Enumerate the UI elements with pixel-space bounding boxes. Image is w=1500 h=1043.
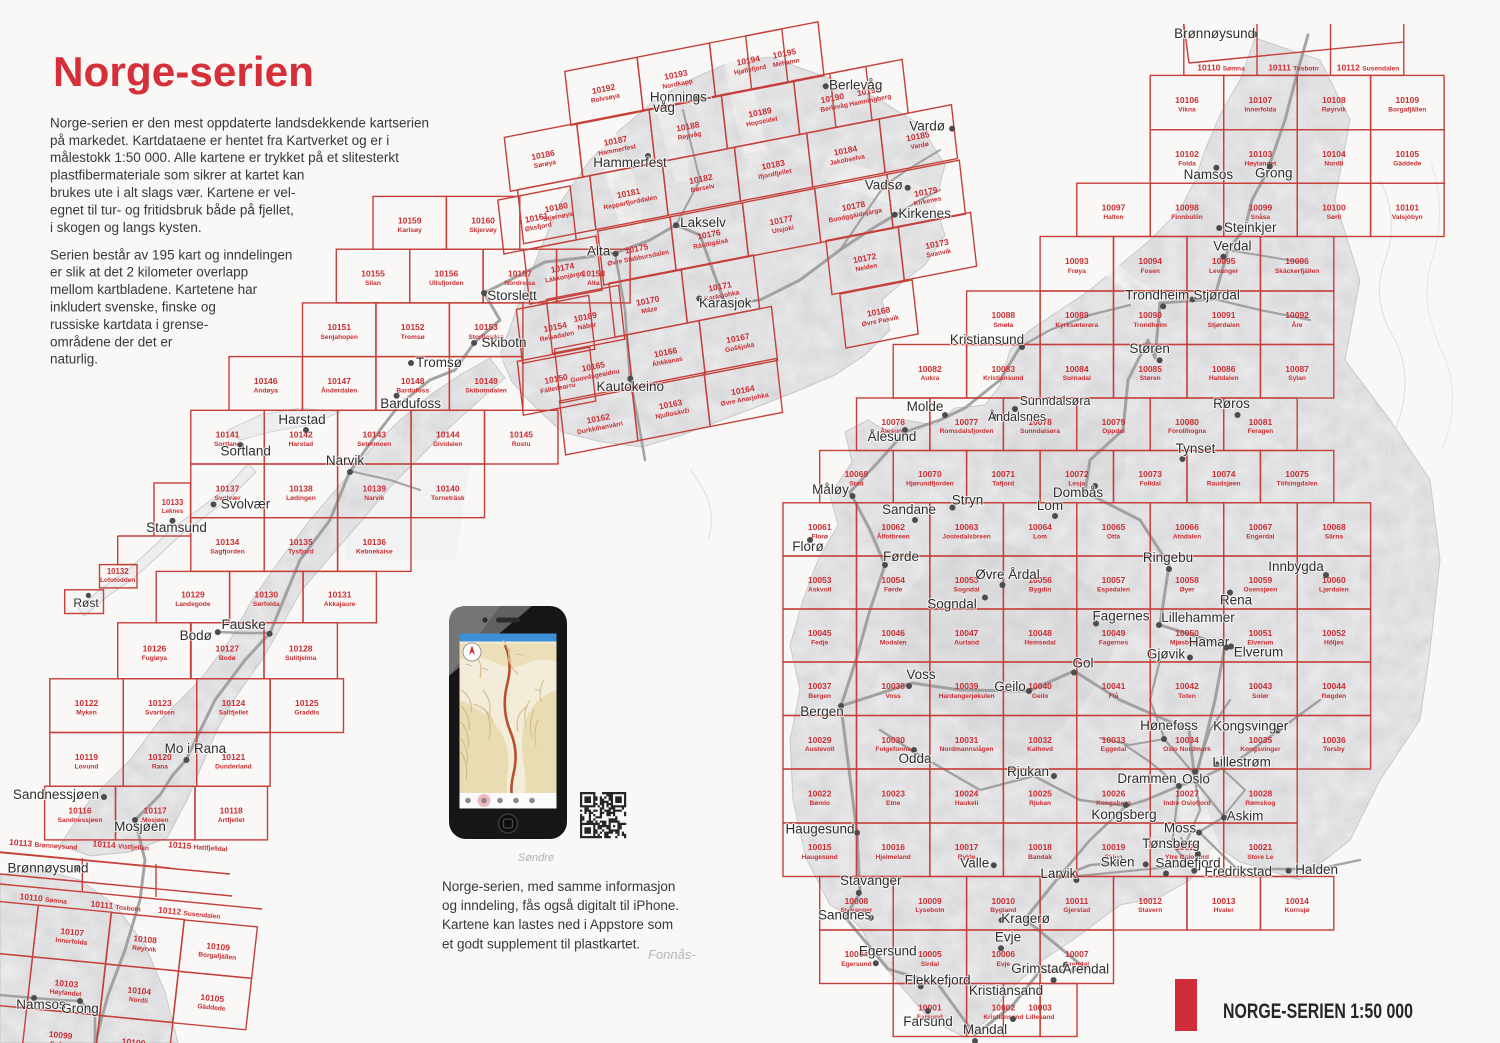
svg-text:Fagernes: Fagernes	[1099, 640, 1129, 647]
svg-text:Bygdin: Bygdin	[1029, 587, 1051, 594]
svg-text:Store Le: Store Le	[1247, 854, 1274, 861]
svg-text:10003: 10003	[1028, 1003, 1052, 1013]
svg-text:plastfibermateriale som sikrer: plastfibermateriale som sikrer at kartet…	[50, 168, 304, 183]
svg-text:Oslo Nordmark: Oslo Nordmark	[1163, 746, 1211, 753]
svg-text:Lakselv: Lakselv	[680, 215, 726, 230]
svg-text:Ringebu: Ringebu	[1143, 550, 1193, 565]
svg-text:områdene der det er: områdene der det er	[50, 334, 173, 349]
svg-text:Moss: Moss	[1164, 821, 1197, 836]
svg-text:10057: 10057	[1102, 575, 1126, 585]
svg-text:Narvik: Narvik	[364, 495, 384, 502]
svg-text:Finnbuliin: Finnbuliin	[1171, 214, 1203, 221]
svg-text:Kirkenes: Kirkenes	[898, 206, 951, 221]
svg-text:Gäddede: Gäddede	[1393, 161, 1422, 168]
svg-text:Brønnøysund: Brønnøysund	[1174, 26, 1255, 41]
svg-text:Egersund: Egersund	[841, 961, 871, 968]
svg-text:Mo i Rana: Mo i Rana	[165, 741, 227, 756]
svg-text:Nordli: Nordli	[1324, 161, 1343, 168]
svg-text:10035: 10035	[1249, 735, 1273, 745]
svg-text:Lillesand: Lillesand	[1026, 1014, 1055, 1021]
svg-text:Lysebotn: Lysebotn	[915, 907, 944, 914]
svg-text:Kongsberg: Kongsberg	[1091, 807, 1156, 822]
svg-text:Sortland: Sortland	[221, 443, 271, 458]
svg-text:inkludert svenske, finske og: inkludert svenske, finske og	[50, 300, 216, 315]
svg-text:Bardufoss: Bardufoss	[396, 388, 429, 395]
svg-text:Solør: Solør	[1252, 693, 1269, 700]
svg-text:Røgden: Røgden	[1322, 693, 1347, 700]
svg-text:10081: 10081	[1249, 417, 1273, 427]
svg-text:10011: 10011	[1065, 896, 1088, 906]
svg-text:Brønnøysund: Brønnøysund	[7, 861, 88, 876]
svg-text:Kautokeino: Kautokeino	[597, 379, 665, 394]
svg-text:10062: 10062	[881, 522, 905, 532]
svg-text:10051: 10051	[1249, 628, 1273, 638]
svg-text:10037: 10037	[808, 681, 832, 691]
svg-text:10100: 10100	[121, 1036, 146, 1043]
svg-text:Tysfjord: Tysfjord	[288, 549, 314, 556]
svg-text:10146: 10146	[254, 376, 278, 386]
svg-text:russiske kartdata i grense-: russiske kartdata i grense-	[50, 317, 208, 332]
svg-text:våg: våg	[653, 100, 675, 115]
svg-text:Haukeli: Haukeli	[955, 800, 979, 807]
svg-text:Trondheim: Trondheim	[1133, 322, 1167, 329]
svg-text:Narvik: Narvik	[326, 453, 365, 468]
svg-text:Evje: Evje	[995, 929, 1021, 944]
svg-text:Støren: Støren	[1140, 375, 1161, 382]
svg-text:10072: 10072	[1065, 469, 1089, 479]
svg-text:Borgafjällen: Borgafjällen	[1388, 107, 1426, 114]
svg-text:Myken: Myken	[76, 710, 97, 717]
svg-text:10147: 10147	[327, 376, 351, 386]
svg-text:10128: 10128	[289, 643, 313, 653]
svg-text:Andøya: Andøya	[254, 388, 279, 395]
svg-text:Etne: Etne	[886, 800, 901, 807]
svg-text:Sandnes: Sandnes	[818, 908, 872, 923]
svg-text:10145: 10145	[509, 430, 533, 440]
svg-text:Åndalsnes: Åndalsnes	[988, 409, 1046, 424]
svg-text:Stamsund: Stamsund	[146, 520, 207, 535]
svg-text:10092: 10092	[1285, 310, 1309, 320]
svg-text:Ålesund: Ålesund	[868, 429, 917, 444]
svg-text:Stryn: Stryn	[952, 493, 984, 508]
svg-text:Kebnekaise: Kebnekaise	[356, 549, 393, 556]
svg-text:10099: 10099	[1249, 202, 1273, 212]
svg-text:Serien består av 195 kart og i: Serien består av 195 kart og inndelingen	[50, 247, 292, 262]
svg-text:10157: 10157	[508, 269, 532, 279]
svg-text:10133: 10133	[162, 498, 184, 507]
svg-text:Haugesund: Haugesund	[785, 822, 854, 837]
svg-text:Innbygda: Innbygda	[1268, 559, 1324, 574]
svg-text:10044: 10044	[1322, 681, 1346, 691]
svg-text:Kristiansund: Kristiansund	[950, 332, 1024, 347]
svg-text:10025: 10025	[1028, 789, 1052, 799]
svg-text:Ånderdalen: Ånderdalen	[321, 386, 357, 395]
svg-text:Odda: Odda	[898, 751, 932, 766]
svg-text:Berlevåg: Berlevåg	[829, 77, 882, 92]
svg-text:10144: 10144	[436, 430, 460, 440]
svg-text:Fauske: Fauske	[221, 617, 265, 632]
svg-text:Sogndal: Sogndal	[927, 597, 977, 612]
svg-text:Bardufoss: Bardufoss	[380, 396, 441, 411]
svg-text:10098: 10098	[1175, 202, 1199, 212]
svg-text:10124: 10124	[222, 698, 246, 708]
svg-text:10106: 10106	[1175, 95, 1199, 105]
svg-text:10152: 10152	[401, 322, 425, 332]
svg-text:Verdal: Verdal	[1213, 239, 1251, 254]
svg-text:10141: 10141	[216, 430, 240, 440]
svg-text:Geilo: Geilo	[994, 679, 1026, 694]
svg-text:10038: 10038	[881, 681, 905, 691]
svg-text:10160: 10160	[471, 215, 495, 225]
svg-text:10027: 10027	[1175, 789, 1199, 799]
svg-text:Halten: Halten	[1103, 214, 1123, 221]
svg-text:10041: 10041	[1102, 681, 1126, 691]
svg-text:10034: 10034	[1175, 735, 1199, 745]
svg-text:Egersund: Egersund	[859, 943, 917, 958]
svg-text:Florø: Florø	[792, 539, 824, 554]
svg-text:Kongsvinger: Kongsvinger	[1240, 746, 1281, 753]
svg-text:Tafjord: Tafjord	[992, 481, 1014, 488]
svg-text:10083: 10083	[991, 364, 1015, 374]
svg-text:Gol: Gol	[1072, 656, 1093, 671]
svg-text:10103: 10103	[1249, 149, 1273, 159]
svg-text:10006: 10006	[991, 949, 1015, 959]
svg-text:10061: 10061	[808, 522, 832, 532]
svg-text:Sunndalsøra: Sunndalsøra	[1020, 394, 1091, 408]
svg-text:10079: 10079	[1102, 417, 1126, 427]
svg-text:Hvaler: Hvaler	[1214, 907, 1235, 914]
svg-text:Fosen: Fosen	[1140, 268, 1159, 275]
svg-text:Bømlo: Bømlo	[809, 800, 830, 807]
svg-text:10049: 10049	[1102, 628, 1126, 638]
svg-text:10023: 10023	[881, 789, 905, 799]
svg-text:Oslo: Oslo	[1182, 772, 1210, 787]
svg-text:i skogen og langs kysten.: i skogen og langs kysten.	[50, 220, 202, 235]
svg-text:10143: 10143	[362, 430, 386, 440]
svg-text:Stjørdal: Stjørdal	[1193, 287, 1240, 302]
svg-text:Namsos: Namsos	[1184, 167, 1234, 182]
svg-text:Forollhogna: Forollhogna	[1168, 428, 1206, 435]
svg-text:Førde: Førde	[883, 549, 919, 564]
svg-text:10153: 10153	[474, 322, 498, 332]
svg-text:Karlsøy: Karlsøy	[398, 227, 423, 234]
svg-text:10119: 10119	[75, 752, 98, 762]
svg-text:10058: 10058	[1175, 575, 1199, 585]
svg-text:10094: 10094	[1138, 256, 1162, 266]
svg-text:Harstad: Harstad	[278, 412, 325, 427]
svg-text:Svartisen: Svartisen	[145, 710, 175, 717]
svg-text:10097: 10097	[1102, 202, 1126, 212]
svg-text:10071: 10071	[991, 469, 1015, 479]
svg-text:10105: 10105	[1395, 149, 1419, 159]
svg-text:Rena: Rena	[1220, 593, 1253, 608]
svg-text:10107: 10107	[1249, 95, 1273, 105]
svg-text:Valsjöbyn: Valsjöbyn	[1392, 214, 1423, 221]
svg-text:Elverum: Elverum	[1234, 645, 1284, 660]
svg-text:10032: 10032	[1028, 735, 1052, 745]
svg-text:10047: 10047	[955, 628, 979, 638]
svg-text:10065: 10065	[1102, 522, 1126, 532]
svg-text:Molde: Molde	[907, 399, 944, 414]
svg-text:10148: 10148	[401, 376, 425, 386]
svg-text:Askim: Askim	[1227, 809, 1264, 824]
svg-text:Skibotndalen: Skibotndalen	[465, 388, 506, 395]
svg-text:10088: 10088	[991, 310, 1015, 320]
svg-text:10156: 10156	[435, 269, 459, 279]
svg-text:Rjukan: Rjukan	[1007, 764, 1049, 779]
svg-text:Bodø: Bodø	[180, 628, 212, 643]
svg-text:Eggedal: Eggedal	[1101, 746, 1127, 753]
svg-text:Lillestrøm: Lillestrøm	[1212, 755, 1271, 770]
svg-text:et godt supplement til plastka: et godt supplement til plastkartet.	[442, 936, 640, 951]
svg-text:er slik at det 2 kilometer ove: er slik at det 2 kilometer overlapp	[50, 265, 248, 280]
svg-text:Frøya: Frøya	[1068, 268, 1086, 275]
svg-text:10130: 10130	[254, 590, 278, 600]
svg-text:Innerfolda: Innerfolda	[1244, 107, 1276, 114]
svg-text:Mandal: Mandal	[963, 1022, 1007, 1037]
svg-text:Grimstad: Grimstad	[1011, 961, 1066, 976]
svg-text:Alta: Alta	[587, 280, 600, 287]
svg-text:10069: 10069	[845, 469, 869, 479]
svg-text:10031: 10031	[955, 735, 979, 745]
svg-text:10067: 10067	[1249, 522, 1273, 532]
svg-text:Valle: Valle	[960, 855, 989, 870]
svg-text:Øyer: Øyer	[1179, 587, 1194, 594]
svg-text:Kristiansand: Kristiansand	[969, 983, 1043, 998]
svg-text:Norge-serien: Norge-serien	[53, 48, 314, 95]
svg-text:10109: 10109	[1395, 95, 1419, 105]
svg-text:10089: 10089	[1065, 310, 1089, 320]
svg-text:10090: 10090	[1138, 310, 1162, 320]
svg-text:Sandane: Sandane	[882, 502, 936, 517]
svg-text:10074: 10074	[1212, 469, 1236, 479]
svg-text:10053: 10053	[808, 575, 832, 585]
svg-text:10018: 10018	[1028, 842, 1052, 852]
svg-text:10082: 10082	[918, 364, 942, 374]
svg-text:Farsund: Farsund	[903, 1014, 953, 1029]
svg-text:10021: 10021	[1249, 842, 1273, 852]
svg-text:Øvre Årdal: Øvre Årdal	[975, 567, 1040, 582]
svg-text:brukes ute i alt slags vær. Ka: brukes ute i alt slags vær. Kartene er v…	[50, 185, 295, 200]
svg-text:Torsby: Torsby	[1323, 746, 1345, 753]
svg-text:Stavern: Stavern	[1138, 907, 1162, 914]
svg-text:Måløy: Måløy	[812, 482, 849, 497]
svg-text:Raudsjøen: Raudsjøen	[1207, 481, 1241, 488]
svg-text:Setermoen: Setermoen	[357, 441, 391, 448]
svg-text:Røros: Røros	[1213, 396, 1250, 411]
svg-text:Rana: Rana	[152, 763, 168, 770]
svg-text:10080: 10080	[1175, 417, 1199, 427]
svg-text:10054: 10054	[881, 575, 905, 585]
svg-text:Sirdal: Sirdal	[921, 961, 939, 968]
svg-text:Haugesund: Haugesund	[802, 854, 838, 861]
svg-text:10073: 10073	[1138, 469, 1162, 479]
svg-text:10009: 10009	[918, 896, 942, 906]
svg-text:Flå: Flå	[1109, 692, 1119, 700]
svg-text:Dividalen: Dividalen	[433, 441, 462, 448]
svg-text:Storslett: Storslett	[487, 288, 537, 303]
svg-text:Skjervøy: Skjervøy	[469, 227, 497, 234]
svg-text:Skäckerfjällen: Skäckerfjällen	[1275, 268, 1319, 275]
svg-text:mellom kartbladene. Kartetene: mellom kartbladene. Kartetene har	[50, 282, 258, 297]
svg-text:10104: 10104	[1322, 149, 1346, 159]
svg-text:Akkajaure: Akkajaure	[324, 601, 356, 608]
svg-text:10138: 10138	[289, 483, 313, 493]
svg-text:10100: 10100	[1322, 202, 1346, 212]
svg-text:Rjukan: Rjukan	[1029, 800, 1051, 807]
svg-text:Rostu: Rostu	[512, 441, 531, 448]
svg-text:Tynset: Tynset	[1176, 441, 1216, 456]
svg-text:10017: 10017	[955, 842, 979, 852]
svg-text:Larvik: Larvik	[1040, 866, 1076, 881]
svg-text:10139: 10139	[362, 483, 386, 493]
svg-text:10091: 10091	[1212, 310, 1236, 320]
svg-text:10015: 10015	[808, 842, 832, 852]
svg-text:Feragen: Feragen	[1248, 428, 1274, 435]
svg-text:10075: 10075	[1285, 469, 1309, 479]
svg-text:Hardangerjøkulen: Hardangerjøkulen	[939, 693, 995, 700]
svg-text:Sagfjorden: Sagfjorden	[210, 549, 244, 556]
svg-text:10063: 10063	[955, 522, 979, 532]
svg-text:Sandnessjøen: Sandnessjøen	[58, 817, 103, 824]
svg-text:Espedalen: Espedalen	[1097, 587, 1130, 594]
svg-text:Atndalen: Atndalen	[1173, 533, 1201, 540]
svg-text:Kalhovd: Kalhovd	[1027, 746, 1053, 753]
svg-text:Sandnessjøen: Sandnessjøen	[13, 787, 99, 802]
svg-text:10048: 10048	[1028, 628, 1052, 638]
svg-text:Toten: Toten	[1178, 693, 1195, 700]
svg-text:10033: 10033	[1102, 735, 1126, 745]
svg-text:Evje: Evje	[997, 961, 1011, 968]
svg-text:10140: 10140	[436, 483, 460, 493]
svg-text:Grong: Grong	[1255, 165, 1293, 180]
svg-text:Kristiansund: Kristiansund	[983, 375, 1023, 382]
svg-text:10030: 10030	[881, 735, 905, 745]
svg-text:Karasjok: Karasjok	[699, 296, 752, 311]
svg-text:Otta: Otta	[1107, 533, 1121, 540]
svg-text:Hønefoss: Hønefoss	[1140, 718, 1198, 733]
svg-text:Svolvær: Svolvær	[221, 496, 271, 511]
svg-text:10059: 10059	[1249, 575, 1273, 585]
svg-text:målestokk 1:50 000. Alle karte: målestokk 1:50 000. Alle kartene er tryk…	[50, 150, 399, 165]
svg-text:Norge-serien er den mest oppda: Norge-serien er den mest oppdaterte land…	[50, 115, 429, 130]
svg-text:Sogndal: Sogndal	[954, 587, 980, 594]
svg-text:Sulitjelma: Sulitjelma	[285, 655, 316, 662]
svg-text:Skibotn: Skibotn	[481, 335, 526, 350]
svg-text:Töfsingdalen: Töfsingdalen	[1277, 481, 1318, 488]
svg-text:NORGE-SERIEN 1:50 000: NORGE-SERIEN 1:50 000	[1223, 1000, 1413, 1023]
svg-text:Alta: Alta	[587, 244, 611, 259]
svg-text:10084: 10084	[1065, 364, 1089, 374]
svg-text:10117: 10117	[144, 806, 167, 816]
svg-text:Fredrikstad: Fredrikstad	[1205, 864, 1273, 879]
svg-text:på markedet. Kartdataene er he: på markedet. Kartdataene er hentet fra K…	[50, 133, 389, 148]
svg-text:Ålfotbreen: Ålfotbreen	[877, 531, 910, 540]
svg-text:10052: 10052	[1322, 628, 1346, 638]
svg-text:Sunndalsøra: Sunndalsøra	[1020, 428, 1060, 435]
svg-text:Lillehammer: Lillehammer	[1161, 610, 1235, 625]
svg-text:10029: 10029	[808, 735, 832, 745]
svg-text:Rømskog: Rømskog	[1245, 800, 1275, 807]
svg-text:egnet til tur- og fritidsbruk: egnet til tur- og fritidsbruk både på fj…	[50, 202, 294, 217]
svg-text:10086: 10086	[1212, 364, 1236, 374]
svg-text:Flekkefjord: Flekkefjord	[905, 972, 971, 987]
svg-text:Harstad: Harstad	[289, 441, 314, 448]
svg-text:10136: 10136	[362, 537, 386, 547]
svg-text:Fedje: Fedje	[811, 640, 829, 647]
svg-text:Hemsedal: Hemsedal	[1025, 640, 1056, 647]
svg-text:Senjahopen: Senjahopen	[321, 334, 358, 341]
svg-text:Torneträsk: Torneträsk	[431, 495, 465, 502]
svg-text:Sørfolda: Sørfolda	[253, 601, 280, 608]
svg-text:Kyrksæterøra: Kyrksæterøra	[1055, 322, 1098, 329]
svg-text:10129: 10129	[181, 590, 205, 600]
svg-text:Indre Oslofjord: Indre Oslofjord	[1163, 800, 1210, 807]
svg-text:10046: 10046	[881, 628, 905, 638]
svg-text:Lom: Lom	[1033, 533, 1047, 540]
svg-text:Modalen: Modalen	[880, 640, 907, 647]
svg-text:Smøla: Smøla	[993, 322, 1013, 329]
svg-text:Ljørdalen: Ljørdalen	[1319, 587, 1349, 594]
svg-text:Halden: Halden	[1295, 862, 1338, 877]
svg-text:Saltfjellet: Saltfjellet	[219, 710, 249, 717]
svg-text:Kongsvinger: Kongsvinger	[1213, 719, 1289, 734]
svg-text:Tromsø: Tromsø	[416, 355, 462, 370]
svg-text:Lofotodden: Lofotodden	[100, 577, 135, 584]
svg-text:Tønsberg: Tønsberg	[1142, 836, 1200, 851]
svg-text:10132: 10132	[107, 567, 129, 576]
svg-text:Nordreisa: Nordreisa	[504, 280, 535, 287]
svg-text:10131: 10131	[328, 590, 352, 600]
svg-text:Søndre: Søndre	[518, 852, 554, 864]
svg-text:10116: 10116	[68, 806, 91, 816]
svg-text:Haltdalen: Haltdalen	[1209, 375, 1239, 382]
svg-text:10019: 10019	[1102, 842, 1126, 852]
svg-text:Aukra: Aukra	[921, 375, 940, 382]
svg-text:Folldal: Folldal	[1140, 481, 1161, 488]
svg-text:10039: 10039	[955, 681, 979, 691]
svg-text:Bodø: Bodø	[219, 655, 236, 662]
svg-text:Tromsø: Tromsø	[401, 334, 425, 341]
svg-text:Gjøvik: Gjøvik	[1147, 647, 1185, 662]
svg-text:Hammerfest: Hammerfest	[593, 155, 667, 170]
svg-text:Arendal: Arendal	[1063, 962, 1110, 977]
svg-text:10118: 10118	[220, 806, 243, 816]
svg-text:Nordmannslågen: Nordmannslågen	[940, 745, 994, 753]
svg-text:Stad: Stad	[849, 481, 863, 488]
svg-text:10068: 10068	[1322, 522, 1346, 532]
svg-text:10005: 10005	[918, 949, 942, 959]
svg-text:Romsdalsfjorden: Romsdalsfjorden	[940, 428, 994, 435]
svg-text:10042: 10042	[1175, 681, 1199, 691]
svg-text:10010: 10010	[991, 896, 1015, 906]
svg-text:Steinkjer: Steinkjer	[1224, 220, 1277, 235]
svg-text:Austevoll: Austevoll	[805, 746, 835, 753]
svg-text:Skien: Skien	[1101, 854, 1135, 869]
svg-text:Fonnås-: Fonnås-	[648, 947, 696, 962]
svg-text:Grong: Grong	[61, 1001, 99, 1016]
svg-text:Geilo: Geilo	[1032, 693, 1049, 700]
svg-text:10108: 10108	[1322, 95, 1346, 105]
svg-text:Dunderland: Dunderland	[215, 763, 252, 770]
svg-text:10126: 10126	[143, 643, 167, 653]
svg-text:Höljes: Höljes	[1324, 640, 1344, 647]
svg-text:Kragerø: Kragerø	[1001, 911, 1050, 926]
svg-text:10012: 10012	[1138, 896, 1162, 906]
svg-text:Artfjellet: Artfjellet	[218, 817, 246, 824]
svg-text:10028: 10028	[1249, 789, 1273, 799]
svg-text:Støren: Støren	[1129, 341, 1170, 356]
